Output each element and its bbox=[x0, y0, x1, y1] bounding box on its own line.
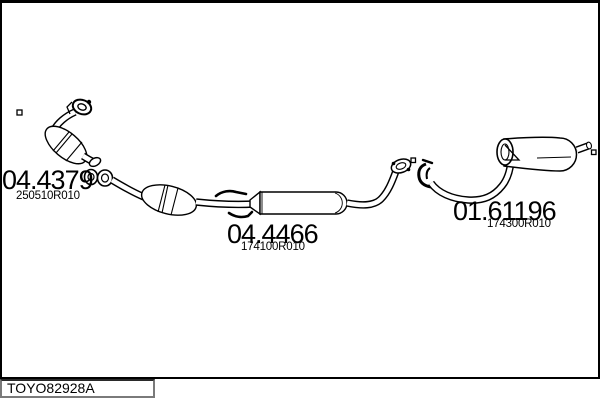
parts-diagram-page: { "window": { "background": "#ffffff", "… bbox=[0, 0, 600, 400]
flange-bolt bbox=[87, 100, 91, 104]
middle-silencer-drawing bbox=[85, 156, 416, 220]
ref-square-marker bbox=[17, 110, 22, 115]
part-ref-front-cat: 250510R010 bbox=[16, 191, 80, 203]
front-catalytic-converter-drawing bbox=[17, 97, 102, 171]
hanger-rod-top bbox=[216, 191, 246, 196]
pipe-clamp-drawing bbox=[419, 160, 432, 187]
hanger-rod-bottom bbox=[229, 212, 252, 217]
part-ref-rear-silencer: 174300R010 bbox=[487, 219, 551, 231]
catalog-code-box: TOYO82928A bbox=[0, 379, 155, 398]
rear-silencer-drawing bbox=[431, 137, 596, 200]
catalog-code-label: TOYO82928A bbox=[7, 380, 95, 396]
ref-square-marker bbox=[411, 158, 416, 163]
flange-bolt bbox=[392, 162, 396, 166]
flange-bolt bbox=[407, 168, 411, 172]
part-ref-middle-silencer: 174100R010 bbox=[241, 242, 305, 254]
ref-square-marker bbox=[592, 150, 597, 155]
